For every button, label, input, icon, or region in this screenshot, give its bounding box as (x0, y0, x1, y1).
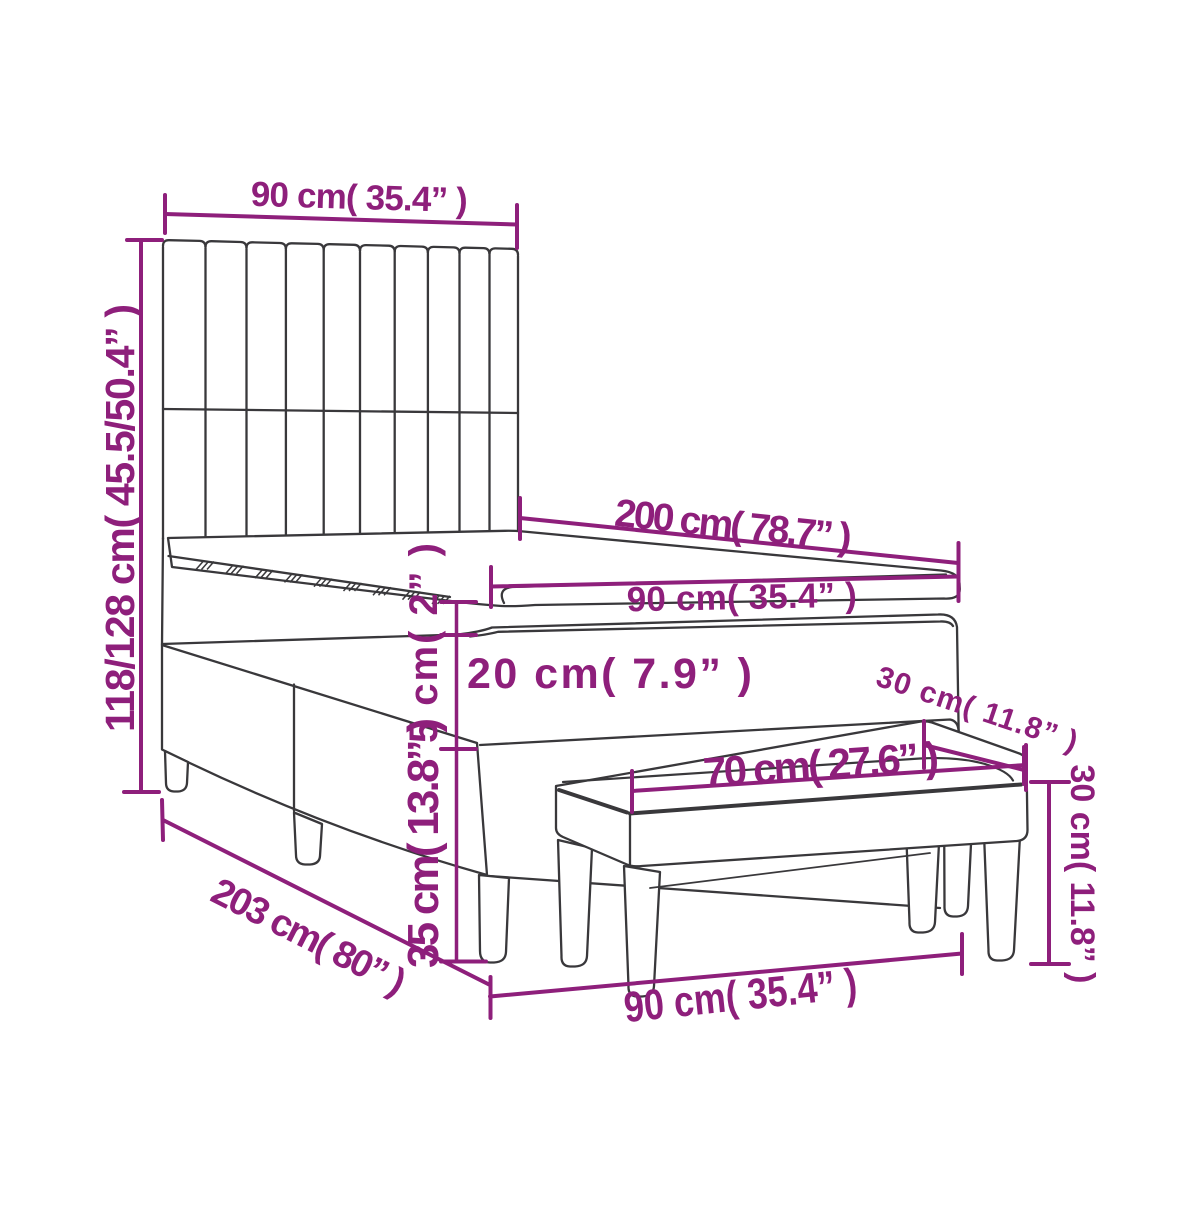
svg-text:5 cm( 2” ): 5 cm( 2” ) (402, 543, 446, 743)
svg-text:118/128 cm( 45.5/50.4” ): 118/128 cm( 45.5/50.4” ) (97, 304, 143, 732)
svg-text:90 cm( 35.4” ): 90 cm( 35.4” ) (250, 175, 468, 220)
svg-text:35 cm( 13.8” ): 35 cm( 13.8” ) (399, 718, 448, 968)
svg-text:90 cm( 35.4” ): 90 cm( 35.4” ) (626, 576, 857, 620)
svg-text:30 cm( 11.8” ): 30 cm( 11.8” ) (1063, 765, 1101, 984)
svg-text:20 cm( 7.9” ): 20 cm( 7.9” ) (467, 650, 752, 698)
